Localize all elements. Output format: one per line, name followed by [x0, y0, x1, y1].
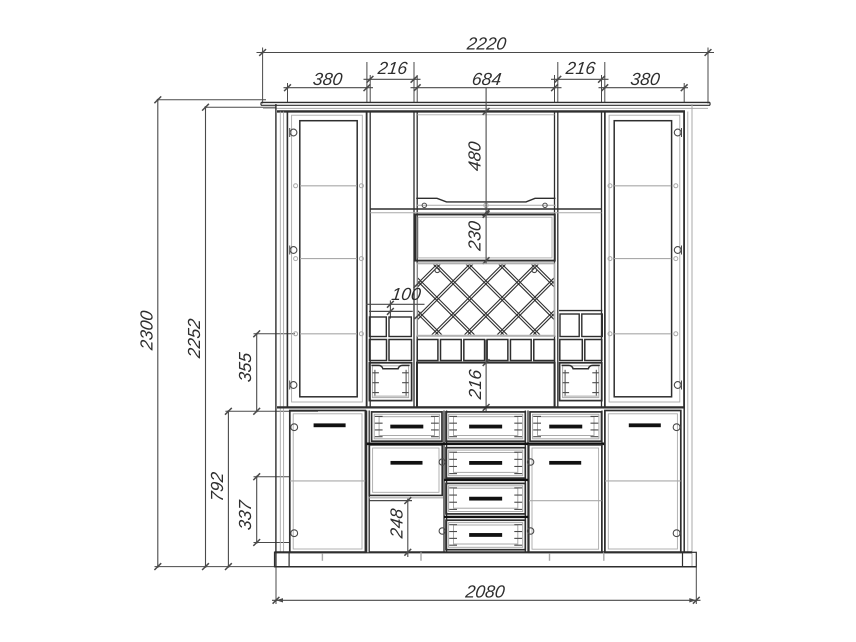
svg-text:684: 684: [471, 69, 503, 89]
svg-text:792: 792: [207, 471, 227, 503]
svg-text:230: 230: [465, 220, 485, 253]
svg-text:2220: 2220: [465, 34, 508, 54]
svg-text:100: 100: [390, 284, 422, 304]
svg-text:337: 337: [235, 498, 255, 531]
svg-text:216: 216: [564, 58, 597, 78]
svg-text:380: 380: [629, 69, 661, 89]
svg-text:216: 216: [376, 58, 409, 78]
svg-text:248: 248: [386, 507, 406, 540]
svg-text:380: 380: [312, 69, 344, 89]
svg-text:216: 216: [465, 368, 485, 401]
svg-text:355: 355: [235, 351, 255, 383]
svg-text:2300: 2300: [137, 309, 157, 352]
svg-text:2252: 2252: [184, 317, 204, 360]
svg-text:480: 480: [465, 140, 485, 172]
svg-text:2080: 2080: [464, 582, 507, 602]
